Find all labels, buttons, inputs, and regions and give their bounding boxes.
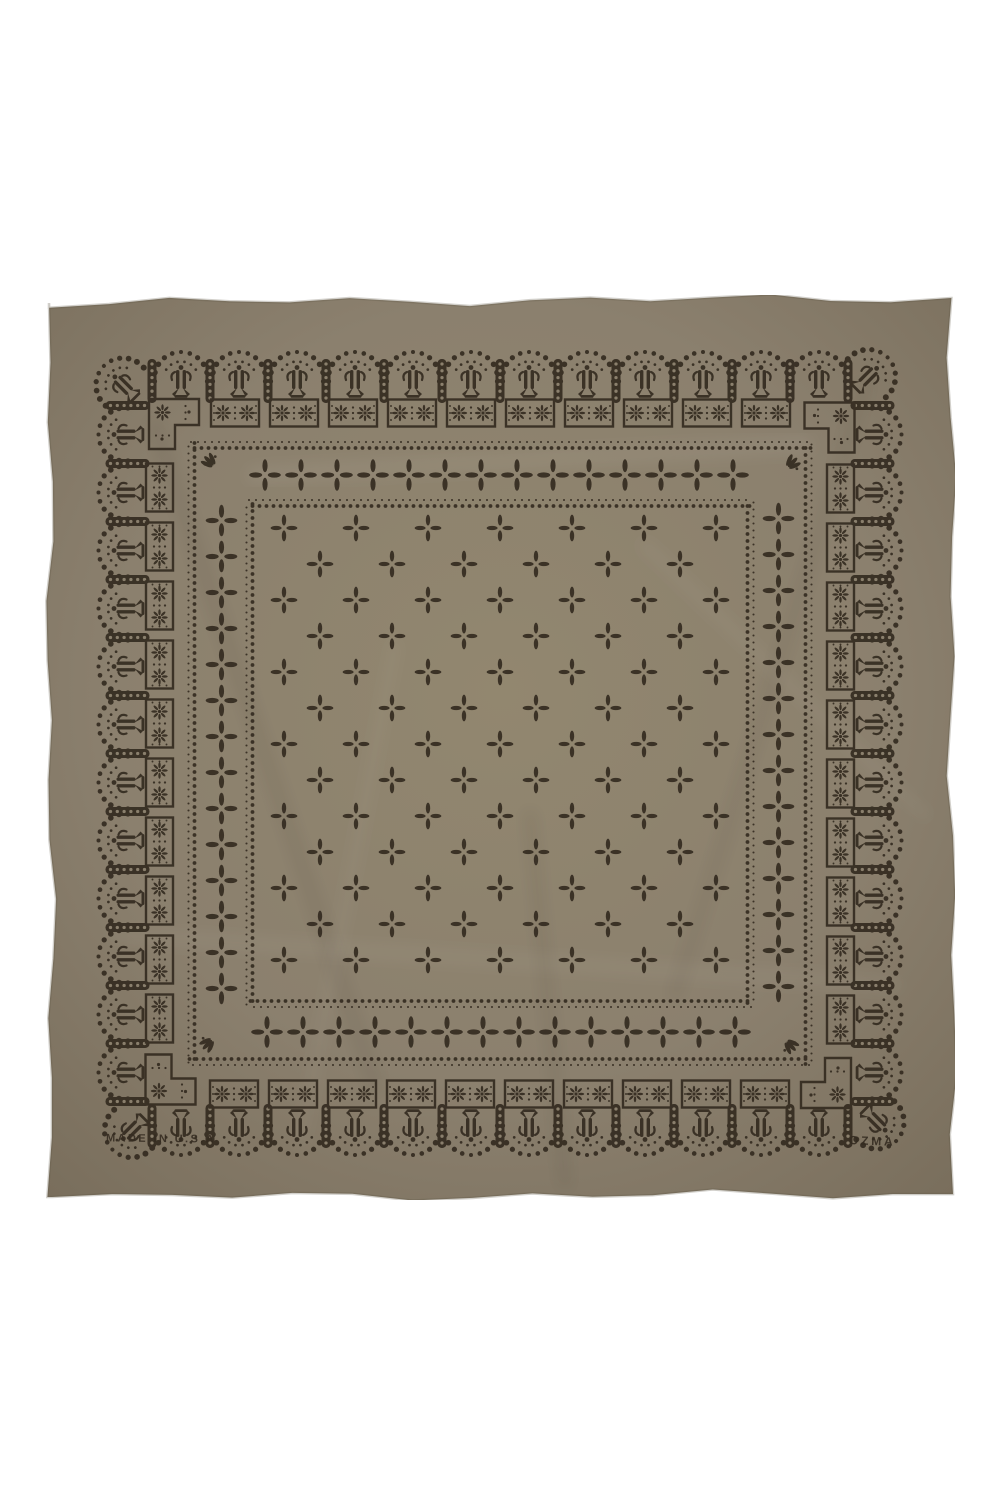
brand-label: OZMA [849, 1133, 896, 1149]
product-photo: MADE IN U.S.A OZMA [0, 0, 1000, 1500]
bandana: MADE IN U.S.A OZMA [45, 295, 955, 1200]
bandana-print-pattern [45, 295, 955, 1200]
made-in-label: MADE IN U.S.A [106, 1132, 216, 1145]
